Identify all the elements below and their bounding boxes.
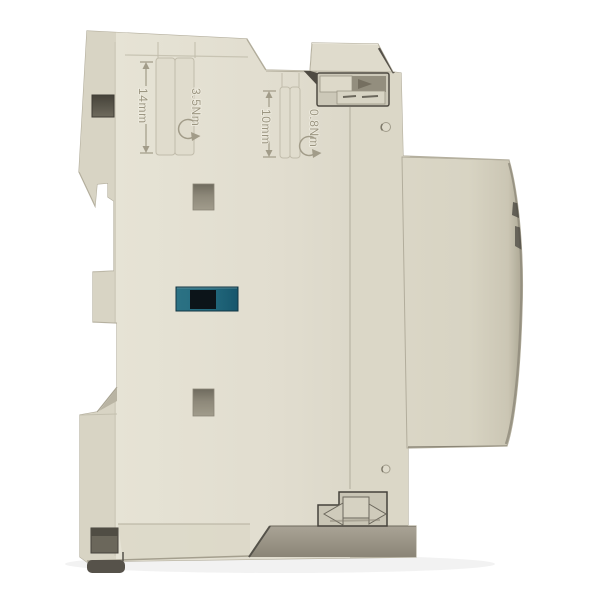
mounting-foot	[87, 560, 125, 573]
indicator-window	[176, 287, 238, 311]
marking-dim-right: 10mm	[259, 109, 273, 145]
back-panel	[350, 40, 410, 530]
top-clip-block	[310, 43, 393, 72]
dimple-top	[381, 123, 390, 132]
din-clip-bottom-block	[343, 497, 369, 518]
vent-hole-top-left	[92, 95, 114, 117]
vent-hole-upper-center	[193, 184, 214, 210]
contactor-side-view: 14mm 3.5Nm 10mm	[0, 0, 600, 600]
marking-torque-right: 0.8Nm	[307, 109, 321, 147]
marking-dim-left: 14mm	[136, 88, 150, 124]
bottom-bevel-face	[118, 524, 250, 560]
product-photo: 14mm 3.5Nm 10mm	[0, 0, 600, 600]
din-clip-top-tab	[320, 76, 352, 92]
vent-hole-bottom-left-shadow	[91, 528, 118, 536]
rear-bulge	[402, 157, 522, 448]
base-shadow-strip	[248, 526, 416, 557]
din-clip-top	[317, 73, 389, 106]
vent-hole-lower-center	[193, 389, 214, 416]
dimple-bottom	[382, 465, 390, 473]
indicator-dark-block	[190, 290, 216, 309]
